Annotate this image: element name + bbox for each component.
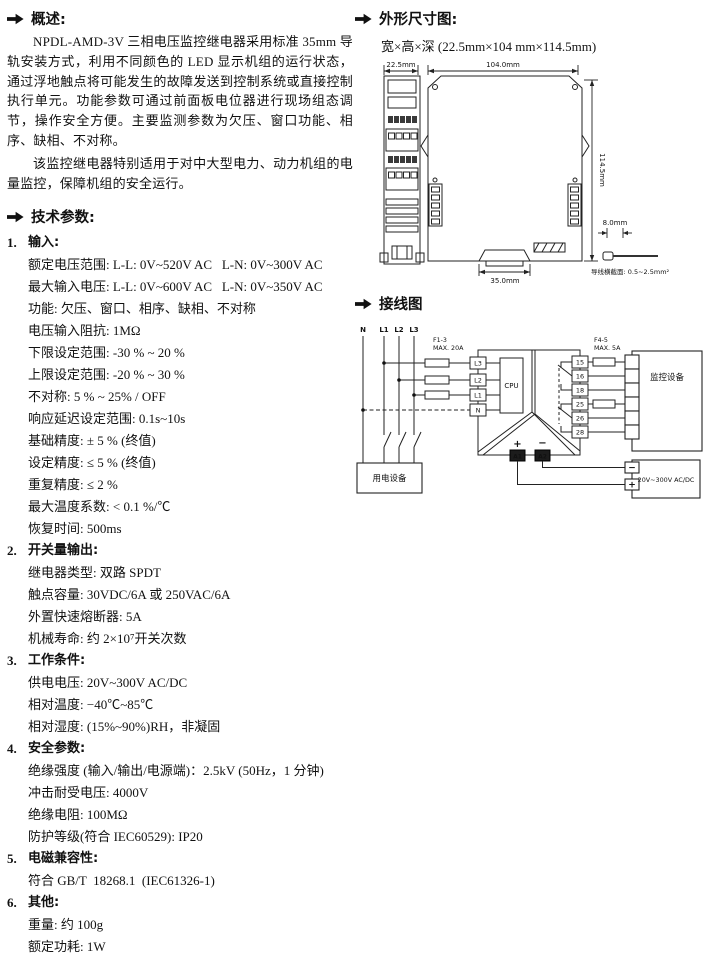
input-fuse-label: F1-3 xyxy=(433,337,447,344)
spec-item: 不对称: 5 % ~ 25% / OFF xyxy=(7,386,353,408)
power-box-label: 20V~300V AC/DC xyxy=(638,476,695,484)
spec-item: 相对湿度: (15%~90%)RH，非凝固 xyxy=(7,716,353,738)
section-title: 输入: xyxy=(28,232,59,254)
output-terminal-15: 15 xyxy=(576,359,584,367)
tech-sections: 1.输入:额定电压范围: L-L: 0V~520V AC L-N: 0V~300… xyxy=(7,232,353,958)
monitor-box-label: 监控设备 xyxy=(650,372,685,383)
overview-header: 概述: xyxy=(7,8,353,29)
output-terminal-28: 28 xyxy=(576,429,584,437)
left-column: 概述: NPDL-AMD-3V 三相电压监控继电器采用标准 35mm 导轨安装方… xyxy=(7,8,353,958)
overview-paragraph-2: 该监控继电器特别适用于对中大型电力、动力机组的电量监控，保障机组的安全运行。 xyxy=(7,154,353,194)
spec-item: 重复精度: ≤ 2 % xyxy=(7,474,353,496)
spec-item: 触点容量: 30VDC/6A 或 250VAC/6A xyxy=(7,584,353,606)
spec-item: 重量: 约 100g xyxy=(7,914,353,936)
spec-item: 基础精度: ± 5 % (终值) xyxy=(7,430,353,452)
arrow-icon xyxy=(355,13,372,25)
input-fuse-rating: MAX. 20A xyxy=(433,345,464,352)
tech-section: 4.安全参数:绝缘强度 (输入/输出/电源端)：2.5kV (50Hz，1 分钟… xyxy=(7,738,353,848)
length-dim-label: 104.0mm xyxy=(486,61,520,69)
section-header: 1.输入: xyxy=(7,232,353,254)
power-wiring xyxy=(518,461,626,485)
input-terminal-n: N xyxy=(476,407,481,415)
tech-params-title: 技术参数: xyxy=(31,206,95,227)
tech-section: 6.其他:重量: 约 100g额定功耗: 1W xyxy=(7,892,353,958)
spec-item: 冲击耐受电压: 4000V xyxy=(7,782,353,804)
output-fuse-label: F4-5 xyxy=(594,337,608,344)
spec-item: 额定电压范围: L-L: 0V~520V AC L-N: 0V~300V AC xyxy=(7,254,353,276)
output-terminal-18: 18 xyxy=(576,387,584,395)
section-title: 其他: xyxy=(28,892,59,914)
section-header: 3.工作条件: xyxy=(7,650,353,672)
dimensions-header: 外形尺寸图: xyxy=(355,8,457,29)
section-number: 5. xyxy=(7,848,28,870)
spec-item: 防护等级(符合 IEC60529): IP20 xyxy=(7,826,353,848)
phase-label-n: N xyxy=(360,326,366,334)
section-header: 5.电磁兼容性: xyxy=(7,848,353,870)
arrow-icon xyxy=(7,211,24,223)
spec-item: 上限设定范围: -20 % ~ 30 % xyxy=(7,364,353,386)
supply-lines xyxy=(363,336,470,463)
spec-item: 绝缘电阻: 100MΩ xyxy=(7,804,353,826)
wiring-diagram-svg: N L1 L2 L3 F1-3 MAX. 20A L3 L2 L1 N CPU … xyxy=(355,316,705,518)
dimension-figure-svg: 22.5mm 104.0mm 114.5mm 35.0mm 8.0mm 导线横截… xyxy=(355,56,705,292)
spec-item: 供电电压: 20V~300V AC/DC xyxy=(7,672,353,694)
section-number: 2. xyxy=(7,540,28,562)
relay-module xyxy=(478,350,580,455)
output-terminal-16: 16 xyxy=(576,373,584,381)
spec-item: 最大温度系数: < 0.1 %/℃ xyxy=(7,496,353,518)
input-terminal-l1: L1 xyxy=(474,392,482,400)
side-view xyxy=(421,76,589,266)
width-dim-label: 22.5mm xyxy=(386,61,415,69)
spec-item: 功能: 欠压、窗口、相序、缺相、不对称 xyxy=(7,298,353,320)
load-box-label: 用电设备 xyxy=(372,473,407,484)
spec-item: 电压输入阻抗: 1MΩ xyxy=(7,320,353,342)
a2-polarity-minus: − xyxy=(538,438,546,449)
section-number: 4. xyxy=(7,738,28,760)
tech-params-header: 技术参数: xyxy=(7,206,353,227)
output-terminal-25: 25 xyxy=(576,401,584,409)
section-title: 工作条件: xyxy=(28,650,85,672)
power-plus-terminal: + xyxy=(628,481,636,491)
power-minus-terminal: − xyxy=(628,464,636,474)
input-terminal-l3: L3 xyxy=(474,360,482,368)
wire-dia-label: 8.0mm xyxy=(603,219,628,227)
section-title: 电磁兼容性: xyxy=(28,848,98,870)
spec-item: 恢复时间: 500ms xyxy=(7,518,353,540)
dimensions-title: 外形尺寸图: xyxy=(379,8,457,29)
spec-item: 相对温度: −40℃~85℃ xyxy=(7,694,353,716)
section-number: 1. xyxy=(7,232,28,254)
section-title: 安全参数: xyxy=(28,738,85,760)
phase-label-l3: L3 xyxy=(409,326,418,334)
wire-note-label: 导线横截面: 0.5~2.5mm² xyxy=(591,267,670,276)
wire-figure xyxy=(603,252,658,260)
cpu-label: CPU xyxy=(504,382,518,390)
spec-item: 机械寿命: 约 2×10⁷开关次数 xyxy=(7,628,353,650)
section-header: 4.安全参数: xyxy=(7,738,353,760)
a1-terminal-label: A1 xyxy=(513,454,522,461)
dimensions-subtitle: 宽×高×深 (22.5mm×104 mm×114.5mm) xyxy=(381,36,596,55)
spec-item: 响应延迟设定范围: 0.1s~10s xyxy=(7,408,353,430)
section-title: 开关量输出: xyxy=(28,540,98,562)
overview-title: 概述: xyxy=(31,8,66,29)
overview-paragraph-1: NPDL-AMD-3V 三相电压监控继电器采用标准 35mm 导轨安装方式，利用… xyxy=(7,32,353,151)
arrow-icon xyxy=(7,13,24,25)
spec-item: 设定精度: ≤ 5 % (终值) xyxy=(7,452,353,474)
output-wiring xyxy=(588,358,625,432)
junction-dots xyxy=(361,361,416,412)
dimension-lines xyxy=(384,65,632,276)
spec-item: 符合 GB/T 18268.1 (IEC61326-1) xyxy=(7,870,353,892)
arrow-icon xyxy=(355,298,372,310)
output-terminal-26: 26 xyxy=(576,415,584,423)
spec-item: 外置快速熔断器: 5A xyxy=(7,606,353,628)
tech-section: 1.输入:额定电压范围: L-L: 0V~520V AC L-N: 0V~300… xyxy=(7,232,353,540)
tech-section: 5.电磁兼容性:符合 GB/T 18268.1 (IEC61326-1) xyxy=(7,848,353,892)
tech-section: 2.开关量输出:继电器类型: 双路 SPDT触点容量: 30VDC/6A 或 2… xyxy=(7,540,353,650)
spec-item: 绝缘强度 (输入/输出/电源端)：2.5kV (50Hz，1 分钟) xyxy=(7,760,353,782)
spec-item: 最大输入电压: L-L: 0V~600V AC L-N: 0V~350V AC xyxy=(7,276,353,298)
a2-terminal-label: A2 xyxy=(538,454,547,461)
datasheet-page: 概述: NPDL-AMD-3V 三相电压监控继电器采用标准 35mm 导轨安装方… xyxy=(0,0,705,967)
phase-label-l2: L2 xyxy=(394,326,403,334)
height-dim-label: 114.5mm xyxy=(598,153,606,187)
a1-polarity-plus: + xyxy=(513,439,521,450)
output-fuse-rating: MAX. 5A xyxy=(594,345,621,352)
tech-section: 3.工作条件:供电电压: 20V~300V AC/DC相对温度: −40℃~85… xyxy=(7,650,353,738)
wiring-title: 接线图 xyxy=(379,293,423,314)
spec-item: 额定功耗: 1W xyxy=(7,936,353,958)
section-header: 2.开关量输出: xyxy=(7,540,353,562)
input-terminal-l2: L2 xyxy=(474,377,482,385)
section-header: 6.其他: xyxy=(7,892,353,914)
spec-item: 继电器类型: 双路 SPDT xyxy=(7,562,353,584)
section-number: 3. xyxy=(7,650,28,672)
phase-label-l1: L1 xyxy=(379,326,388,334)
spec-item: 下限设定范围: -30 % ~ 20 % xyxy=(7,342,353,364)
front-view xyxy=(380,76,424,264)
monitor-box xyxy=(625,351,702,451)
wiring-header: 接线图 xyxy=(355,293,423,314)
rail-dim-label: 35.0mm xyxy=(490,277,519,285)
section-number: 6. xyxy=(7,892,28,914)
